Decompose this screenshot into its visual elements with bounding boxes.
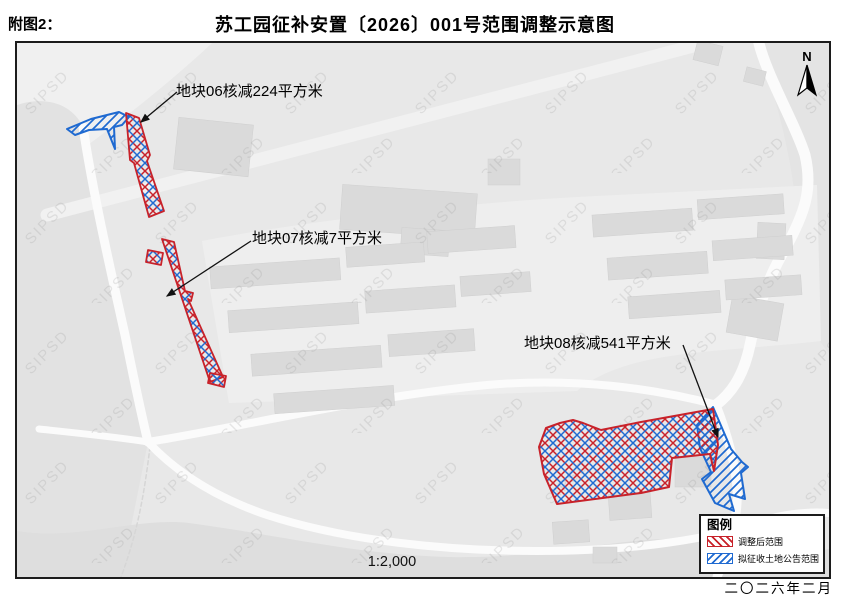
adjusted-parcel-07-arm [146, 250, 163, 265]
map-canvas: SIPSD SIPSD [17, 43, 829, 577]
legend-title: 图例 [707, 518, 818, 533]
north-label: N [802, 49, 811, 64]
legend: 图例 调整后范围 拟征收土地公告范围 [699, 514, 825, 574]
blue-hatch-swatch-icon [707, 553, 733, 564]
legend-item-label: 拟征收土地公告范围 [738, 552, 819, 565]
scale-label: 1:2,000 [317, 554, 467, 570]
red-hatch-swatch-icon [707, 536, 733, 547]
annotation-parcel-06: 地块06核减224平方米 [176, 80, 323, 101]
figure-label: 附图2： [8, 13, 61, 34]
legend-item-announced: 拟征收土地公告范围 [707, 550, 818, 567]
legend-item-adjusted: 调整后范围 [707, 533, 818, 550]
page-title: 苏工园征补安置〔2026〕001号范围调整示意图 [185, 11, 645, 37]
legend-item-label: 调整后范围 [738, 535, 783, 548]
annotation-parcel-08: 地块08核减541平方米 [524, 332, 671, 353]
date-label: 二〇二六年二月 [725, 577, 834, 595]
map-frame: SIPSD SIPSD [15, 41, 831, 579]
page: 附图2： 苏工园征补安置〔2026〕001号范围调整示意图 SIPSD SIPS… [0, 0, 841, 595]
annotation-parcel-07: 地块07核减7平方米 [252, 227, 382, 248]
